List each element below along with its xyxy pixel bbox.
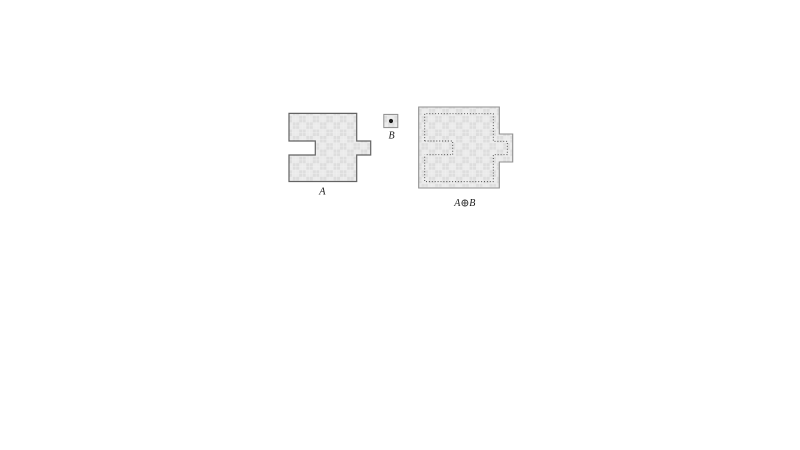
svg-text:A: A xyxy=(318,187,326,198)
svg-text:A: A xyxy=(453,198,461,209)
svg-text:B: B xyxy=(469,198,475,209)
svg-text:B: B xyxy=(388,131,394,142)
